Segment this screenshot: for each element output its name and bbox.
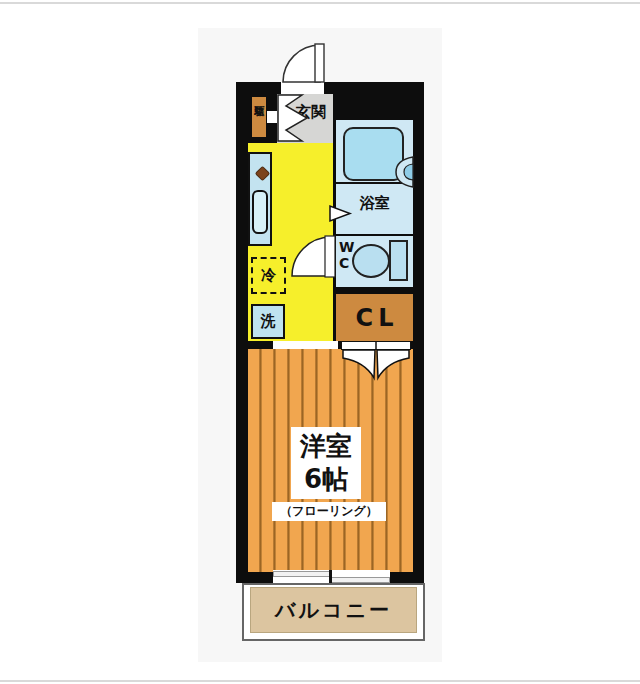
kitchen-sink [252,190,268,234]
refrigerator-label: 冷 [261,266,276,285]
entrance-opening [281,82,324,94]
sliding-window-center-mark [329,570,332,583]
shoe-cabinet-label: 下駄箱 [252,98,266,137]
toilet [352,244,390,278]
toilet-tank [389,240,408,281]
genkan-label: 玄関 [296,103,332,122]
closet-label: CL [351,304,399,332]
western-room-size: 6帖 [304,462,348,496]
sliding-window-pane-left [273,571,332,577]
bathroom-divider-wall [336,182,413,184]
kitchen-room-threshold [273,341,338,349]
bathroom-label: 浴室 [336,194,413,213]
floor-plan-canvas: 玄関 下駄箱 浴室 W C CL 冷 洗 洋室 6帖 （フローリング） バルコニ… [0,0,640,684]
room-balcony: バルコニー [250,587,417,633]
refrigerator-space: 冷 [251,257,286,294]
closet-door-track [341,341,411,350]
bathtub [343,127,404,181]
western-room-label-box: 洋室 6帖 [291,427,361,499]
shoe-cabinet: 下駄箱 [250,95,268,139]
genkan-wall-notch [267,111,277,123]
top-divider-line [0,2,640,4]
floor-note-box: （フローリング） [272,502,386,521]
wc-label-line1: W [339,239,354,255]
bottom-divider-line [0,680,640,682]
washer-label: 洗 [261,312,276,331]
floor-note: （フローリング） [280,503,377,520]
western-room-name: 洋室 [300,430,352,462]
balcony-label: バルコニー [275,597,392,624]
washing-machine-space: 洗 [251,304,285,339]
room-closet: CL [336,294,413,341]
